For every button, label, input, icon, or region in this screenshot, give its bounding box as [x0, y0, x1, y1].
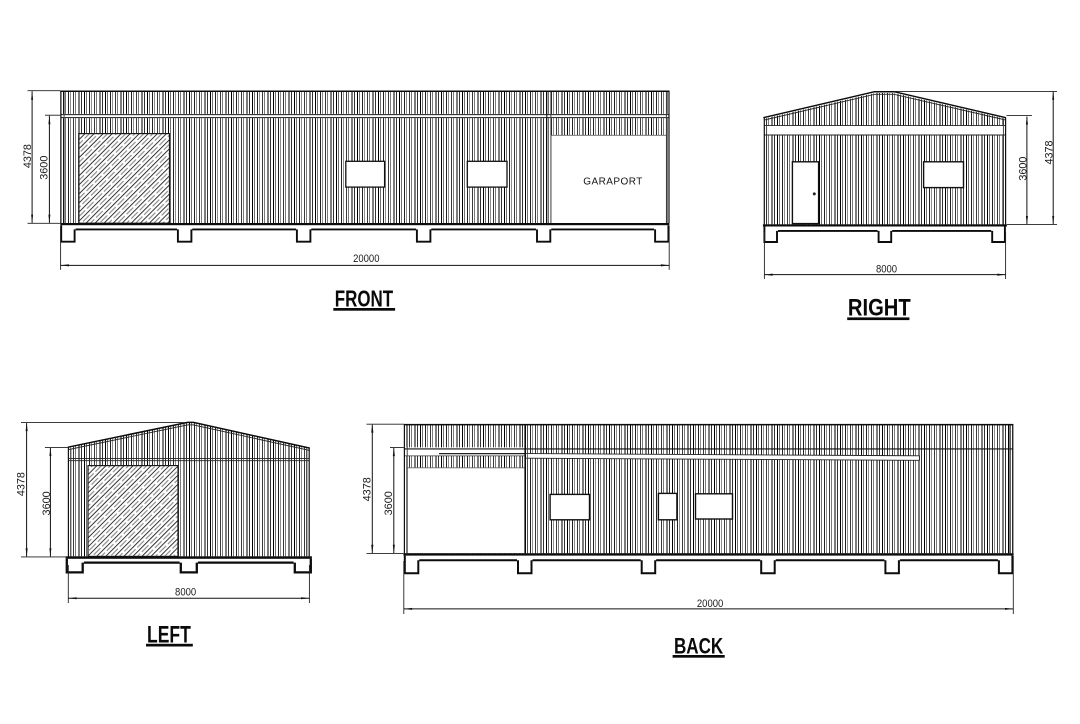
- svg-text:4378: 4378: [22, 144, 34, 168]
- svg-text:3600: 3600: [383, 491, 395, 515]
- svg-text:20000: 20000: [697, 598, 724, 610]
- svg-text:RIGHT: RIGHT: [848, 294, 911, 321]
- svg-text:3600: 3600: [1017, 157, 1029, 181]
- svg-text:4378: 4378: [361, 477, 373, 501]
- svg-text:4378: 4378: [1043, 140, 1055, 164]
- svg-text:3600: 3600: [38, 156, 50, 180]
- svg-text:4378: 4378: [15, 472, 27, 496]
- svg-text:8000: 8000: [175, 587, 196, 599]
- svg-text:8000: 8000: [876, 264, 897, 276]
- svg-text:GARAPORT: GARAPORT: [583, 177, 643, 188]
- svg-text:20000: 20000: [353, 254, 380, 266]
- svg-text:3600: 3600: [41, 491, 53, 515]
